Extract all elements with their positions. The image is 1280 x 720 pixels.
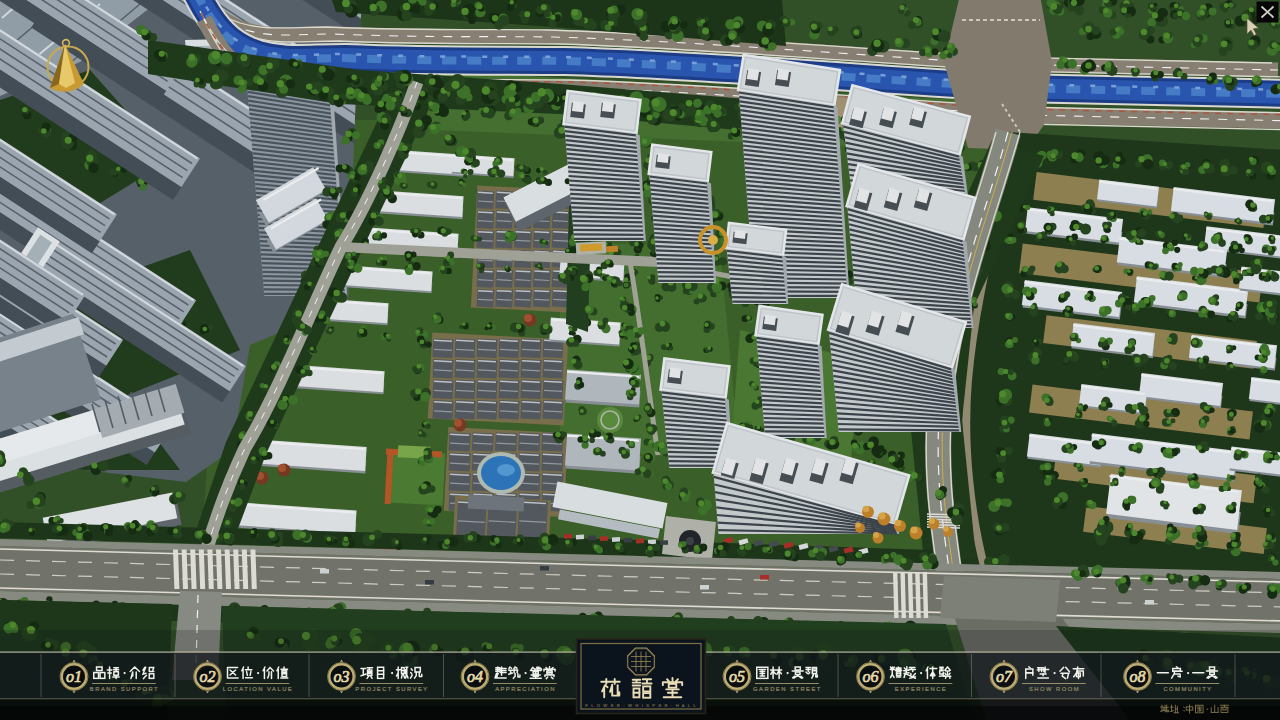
svg-text:o7: o7 <box>996 668 1013 685</box>
svg-text:EXPERIENCE: EXPERIENCE <box>895 686 947 692</box>
svg-text:o4: o4 <box>467 668 483 685</box>
svg-text:o2: o2 <box>200 668 216 685</box>
svg-text:BRAND SUPPORT: BRAND SUPPORT <box>90 686 159 692</box>
svg-text:PROJECT SURVEY: PROJECT SURVEY <box>355 686 428 692</box>
svg-text:LOCATION VALUE: LOCATION VALUE <box>223 686 293 692</box>
svg-text:F L O W E R · W H I S P E R ·: F L O W E R · W H I S P E R · H A L L <box>585 703 697 708</box>
svg-text:o3: o3 <box>334 668 350 685</box>
svg-text:o5: o5 <box>729 668 745 685</box>
svg-text:APPRECIATION: APPRECIATION <box>495 686 556 692</box>
svg-text:GARDEN STREET: GARDEN STREET <box>753 686 822 692</box>
svg-text:o6: o6 <box>863 668 879 685</box>
svg-text:o1: o1 <box>66 668 82 685</box>
svg-text:COMMUNITY: COMMUNITY <box>1163 686 1212 692</box>
svg-text:o8: o8 <box>1130 668 1146 685</box>
svg-text:SHOW ROOM: SHOW ROOM <box>1029 686 1080 692</box>
